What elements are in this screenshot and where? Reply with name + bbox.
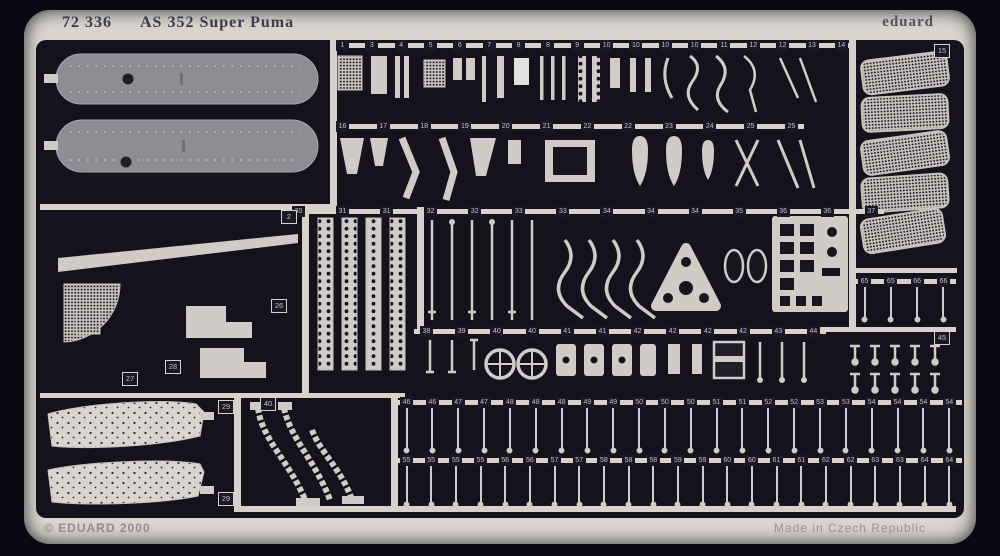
part-number-tab: 7: [483, 40, 496, 51]
part-number-tab: 38: [420, 326, 433, 337]
part-number-tab: 35: [733, 206, 746, 217]
part-number-tab: 61: [795, 455, 808, 508]
part-number-tab: 33: [556, 206, 569, 217]
part-number-tab: 10: [659, 40, 672, 51]
part-number-tab: 32: [424, 206, 437, 217]
part-number-tab: 11: [717, 40, 730, 51]
part-number-tab: 66: [937, 276, 950, 323]
part-number-tab: 49: [607, 397, 620, 454]
part-number-tab: 55: [425, 455, 438, 508]
part-number-tab: 63: [893, 455, 906, 508]
part-number-tab: 9: [571, 40, 584, 51]
part-number-tab: 50: [658, 397, 671, 454]
part-number-tab: 53: [839, 397, 852, 454]
part-number-tab: 58: [597, 455, 610, 508]
part-number-tab: 54: [943, 397, 956, 454]
part-number-tab: 22: [622, 121, 635, 132]
part-number-tab: 57: [573, 455, 586, 508]
part-number-strip-row4: 383940404141424242424344: [420, 326, 820, 337]
part-number-tab: 34: [689, 206, 702, 217]
part-number-tab: 50: [684, 397, 697, 454]
part-number-tab: 10: [688, 40, 701, 51]
part-number-tab: 18: [418, 121, 431, 132]
label-step-a: 27: [122, 372, 138, 386]
label-step-b: 28: [165, 360, 181, 374]
part-number-tab: 42: [701, 326, 714, 337]
part-number-tab: 57: [548, 455, 561, 508]
part-number-tab: 3: [365, 40, 378, 51]
part-number-tab: 65: [884, 276, 897, 323]
part-number-tab: 10: [629, 40, 642, 51]
part-number-tab: 49: [581, 397, 594, 454]
label-left-panel: 2: [281, 210, 297, 224]
part-number-tab: 31: [336, 206, 349, 217]
part-number-tab: 4: [395, 40, 408, 51]
part-number-tab: 8: [512, 40, 525, 51]
part-number-tab: 19: [458, 121, 471, 132]
part-number-tab: 59: [671, 455, 684, 508]
part-number-tab: 48: [529, 397, 542, 454]
part-number-tab: 54: [891, 397, 904, 454]
part-number-strip-row6: 5555555556565757585858595960606161626263…: [400, 455, 956, 508]
part-number-tab: 51: [710, 397, 723, 454]
part-number-tab: 16: [336, 121, 349, 132]
left-panel-parts: [58, 234, 298, 378]
part-number-tab: 5: [424, 40, 437, 51]
part-number-tab: 37: [865, 206, 878, 217]
mid-row-parts: [428, 216, 848, 320]
wing-parts: [48, 402, 214, 504]
part-number-tab: 20: [499, 121, 512, 132]
part-number-tab: 36: [777, 206, 790, 217]
row1-parts: [338, 56, 816, 112]
part-number-tab: 22: [581, 121, 594, 132]
part-number-tab: 12: [776, 40, 789, 51]
part-number-tab: 62: [819, 455, 832, 508]
part-number-tab: 23: [663, 121, 676, 132]
part-number-tab: 39: [455, 326, 468, 337]
part-number-tab: 46: [400, 397, 413, 454]
part-number-tab: 53: [814, 397, 827, 454]
part-number-tab: 48: [555, 397, 568, 454]
part-number-tab: 54: [917, 397, 930, 454]
part-number-tab: 41: [561, 326, 574, 337]
row4-parts: [426, 340, 940, 393]
part-number-tab: 50: [633, 397, 646, 454]
part-number-tab: 55: [474, 455, 487, 508]
part-number-tab: 40: [526, 326, 539, 337]
row2-parts: [340, 136, 814, 200]
part-number-tab: 17: [377, 121, 390, 132]
part-number-strip-row2: 161718192021222223242525: [336, 121, 798, 132]
label-fan-part: 26: [271, 299, 287, 313]
part-number-tab: 40: [490, 326, 503, 337]
part-number-strip-row1: 134567889101010101112121314: [336, 40, 848, 51]
part-number-tab: 21: [540, 121, 553, 132]
part-number-tab: 41: [596, 326, 609, 337]
ladder-strip-parts: [250, 402, 364, 502]
part-number-tab: 12: [747, 40, 760, 51]
part-number-tab: 14: [835, 40, 848, 51]
part-number-tab: 58: [622, 455, 635, 508]
label-wing-top: 29: [218, 400, 234, 414]
mesh-screen-parts: [860, 51, 950, 254]
part-number-tab: 31: [380, 206, 393, 217]
part-number-tab: 63: [869, 455, 882, 508]
part-number-tab: 42: [631, 326, 644, 337]
label-mesh-block: 15: [934, 44, 950, 58]
label-ladder: 40: [260, 397, 276, 411]
part-number-tab: 13: [806, 40, 819, 51]
part-number-tab: 64: [943, 455, 956, 508]
part-number-tab: 55: [400, 455, 413, 508]
part-number-tab: 66: [911, 276, 924, 323]
label-pin-block: 45: [934, 331, 950, 345]
part-number-tab: 47: [452, 397, 465, 454]
part-number-tab: 64: [918, 455, 931, 508]
part-number-tab: 56: [499, 455, 512, 508]
part-number-tab: 25: [744, 121, 757, 132]
label-wing-bottom: 29: [218, 492, 234, 506]
part-number-tab: 60: [721, 455, 734, 508]
perforated-strip-parts: [318, 218, 405, 370]
part-number-tab: 42: [737, 326, 750, 337]
part-number-tab: 33: [512, 206, 525, 217]
part-number-tab: 10: [600, 40, 613, 51]
part-number-tab: 36: [821, 206, 834, 217]
part-number-tab: 61: [770, 455, 783, 508]
part-number-strip-row5: 4646474748484849495050505151525253535454…: [400, 397, 956, 454]
part-number-tab: 56: [523, 455, 536, 508]
part-number-tab: 52: [788, 397, 801, 454]
part-number-tab: 1: [336, 40, 349, 51]
part-number-tab: 24: [703, 121, 716, 132]
part-number-tab: 48: [503, 397, 516, 454]
part-number-tab: 62: [844, 455, 857, 508]
part-number-tab: 34: [600, 206, 613, 217]
part-number-tab: 54: [865, 397, 878, 454]
part-number-tab: 65: [858, 276, 871, 323]
part-number-tab: 59: [696, 455, 709, 508]
part-number-tab: 42: [666, 326, 679, 337]
part-number-tab: 46: [426, 397, 439, 454]
part-number-tab: 8: [541, 40, 554, 51]
part-number-tab: 47: [478, 397, 491, 454]
part-number-tab: 34: [645, 206, 658, 217]
part-number-tab: 51: [736, 397, 749, 454]
part-number-tab: 55: [449, 455, 462, 508]
rotor-blade-parts: [44, 54, 318, 172]
part-number-tab: 44: [807, 326, 820, 337]
part-number-tab: 6: [453, 40, 466, 51]
part-number-tab: 25: [785, 121, 798, 132]
part-number-tab: 58: [647, 455, 660, 508]
part-number-strip-row3: 3031313232333334343435363637: [292, 206, 878, 217]
part-number-tab: 52: [762, 397, 775, 454]
part-number-tab: 32: [468, 206, 481, 217]
part-number-strip-right-mid: 65656666: [858, 276, 950, 323]
part-number-tab: 43: [772, 326, 785, 337]
part-number-tab: 60: [745, 455, 758, 508]
